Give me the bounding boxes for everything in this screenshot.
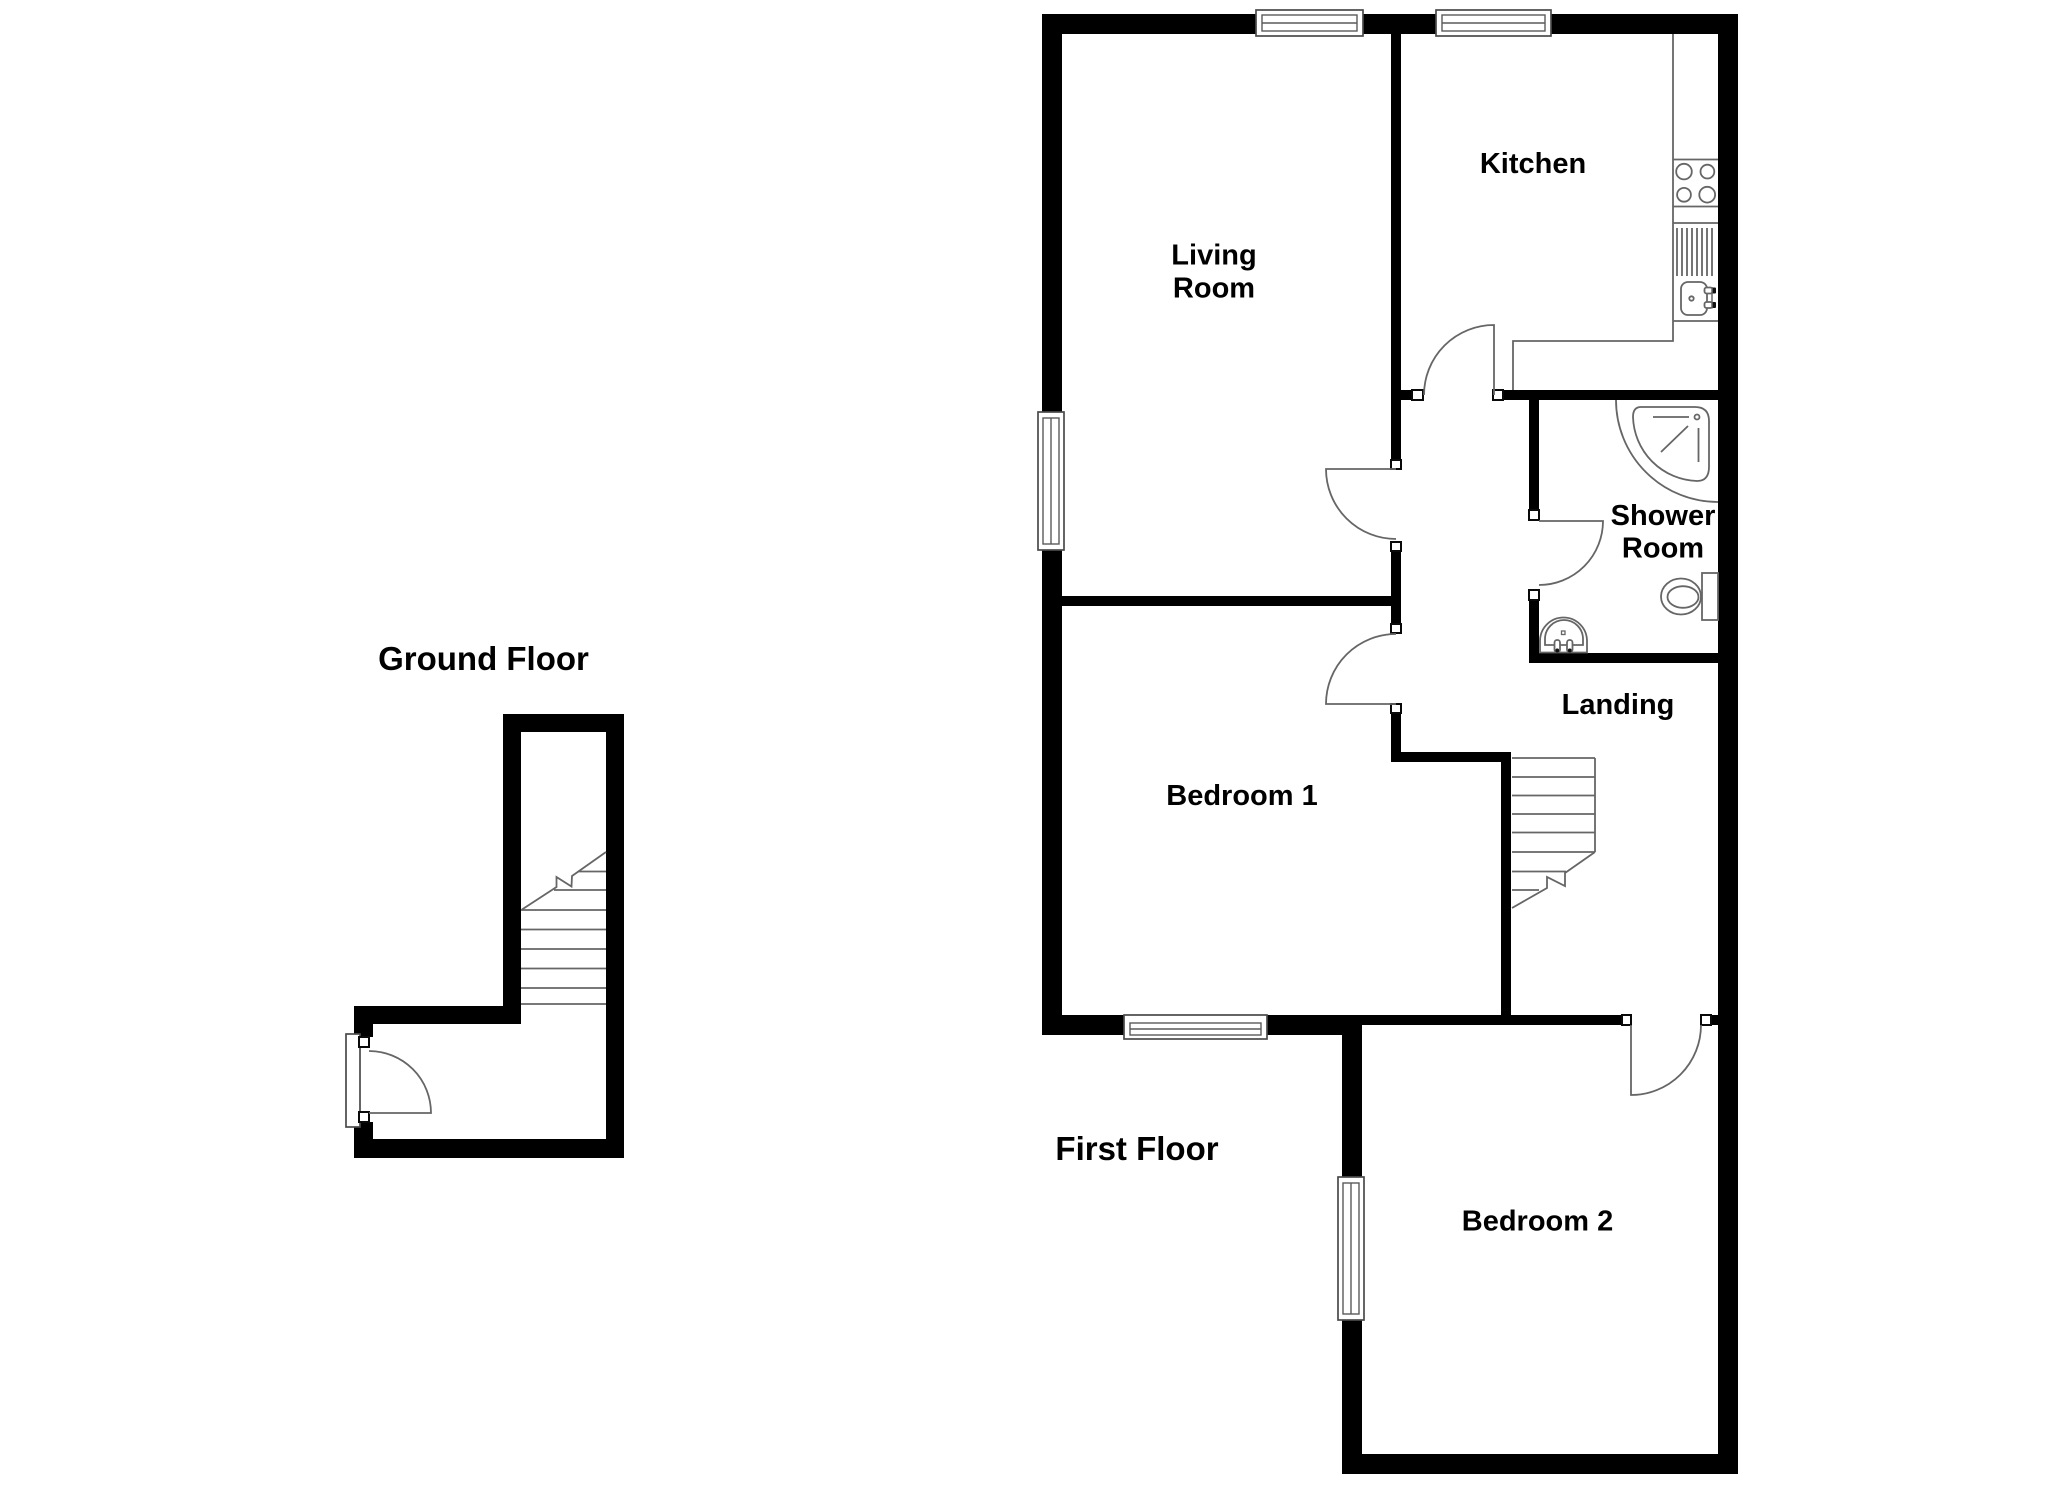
svg-text:Room: Room [1622, 533, 1704, 565]
svg-text:Ground Floor: Ground Floor [378, 640, 589, 677]
svg-text:Bedroom 1: Bedroom 1 [1166, 780, 1317, 812]
svg-text:Room: Room [1173, 273, 1255, 305]
svg-text:Living: Living [1171, 239, 1256, 271]
svg-text:Landing: Landing [1562, 689, 1675, 721]
svg-text:Kitchen: Kitchen [1480, 148, 1586, 180]
svg-text:Bedroom 2: Bedroom 2 [1462, 1206, 1613, 1238]
svg-text:Shower: Shower [1611, 500, 1716, 532]
svg-text:First Floor: First Floor [1055, 1130, 1218, 1167]
